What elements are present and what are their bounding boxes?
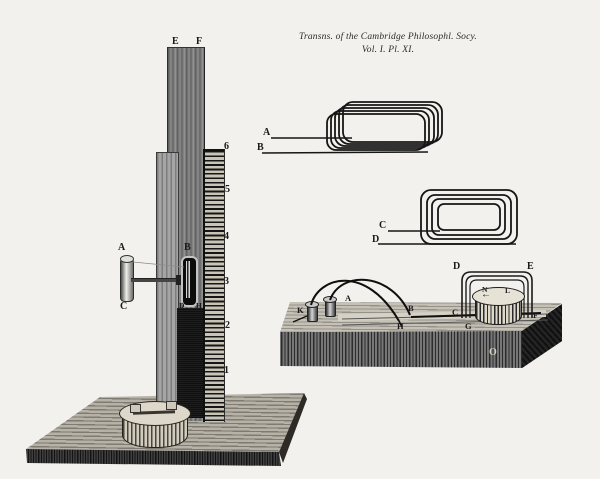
coil-cd-turn	[427, 195, 511, 239]
post-stub-wire	[293, 316, 307, 322]
coil-ab-lead-b	[262, 152, 428, 153]
scale-number-1: 1	[224, 366, 229, 376]
block-drum-label-l: L	[505, 287, 510, 295]
block-label-d: D	[453, 262, 460, 272]
coil-cd-label-c: C	[379, 221, 386, 231]
block-label-f: F	[533, 311, 538, 320]
flat-coil-ab	[262, 102, 442, 153]
scale-number-6: 6	[224, 142, 229, 152]
block-label-e: E	[527, 262, 534, 272]
scale-number-2: 2	[225, 321, 230, 331]
stand-label-f: F	[196, 37, 202, 47]
block-label-a: A	[345, 294, 351, 303]
flat-coil-cd	[378, 190, 517, 244]
stand-label-e: E	[172, 37, 179, 47]
block-label-o: O	[489, 348, 497, 358]
coil-cd-label-d: D	[372, 235, 379, 245]
scale-number-4: 4	[224, 232, 229, 242]
engraving-linework	[0, 0, 600, 479]
coil-cd-turn	[438, 204, 500, 230]
suspension-thread	[133, 262, 184, 267]
coil-ab-label-b: B	[257, 143, 264, 153]
engraving-plate: Transns. of the Cambridge Philosophl. So…	[0, 0, 600, 479]
stand-label-c: C	[120, 302, 127, 312]
arched-wire-right	[330, 280, 410, 315]
block-drum-label-n: N	[482, 286, 487, 294]
stand-label-h-small: H	[196, 302, 202, 310]
coil-ab-label-a: A	[263, 128, 270, 138]
scale-number-3: 3	[224, 277, 229, 287]
block-label-b: B	[408, 304, 414, 313]
arched-wires	[293, 280, 410, 327]
stand-label-d-small: D	[179, 302, 184, 310]
block-label-k: K	[297, 306, 304, 315]
stand-label-b: B	[184, 243, 191, 253]
block-label-g: G	[465, 322, 472, 331]
block-label-c: C	[452, 308, 458, 317]
scale-number-5: 5	[225, 185, 230, 195]
stand-label-a: A	[118, 243, 125, 253]
block-label-h: H	[397, 322, 404, 331]
